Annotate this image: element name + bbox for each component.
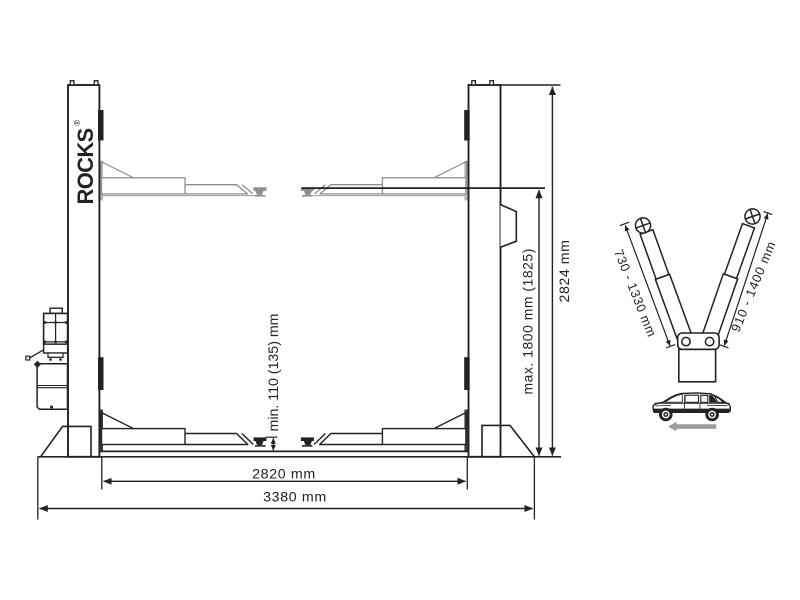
- svg-text:min. 110 (135) mm: min. 110 (135) mm: [266, 313, 282, 431]
- svg-text:2820 mm: 2820 mm: [252, 467, 316, 483]
- svg-text:ROCKS: ROCKS: [73, 129, 98, 205]
- svg-text:2824 mm: 2824 mm: [557, 240, 573, 303]
- svg-text:®: ®: [72, 119, 82, 126]
- svg-text:max. 1800 mm (1825): max. 1800 mm (1825): [520, 248, 536, 394]
- svg-text:3380 mm: 3380 mm: [263, 489, 327, 505]
